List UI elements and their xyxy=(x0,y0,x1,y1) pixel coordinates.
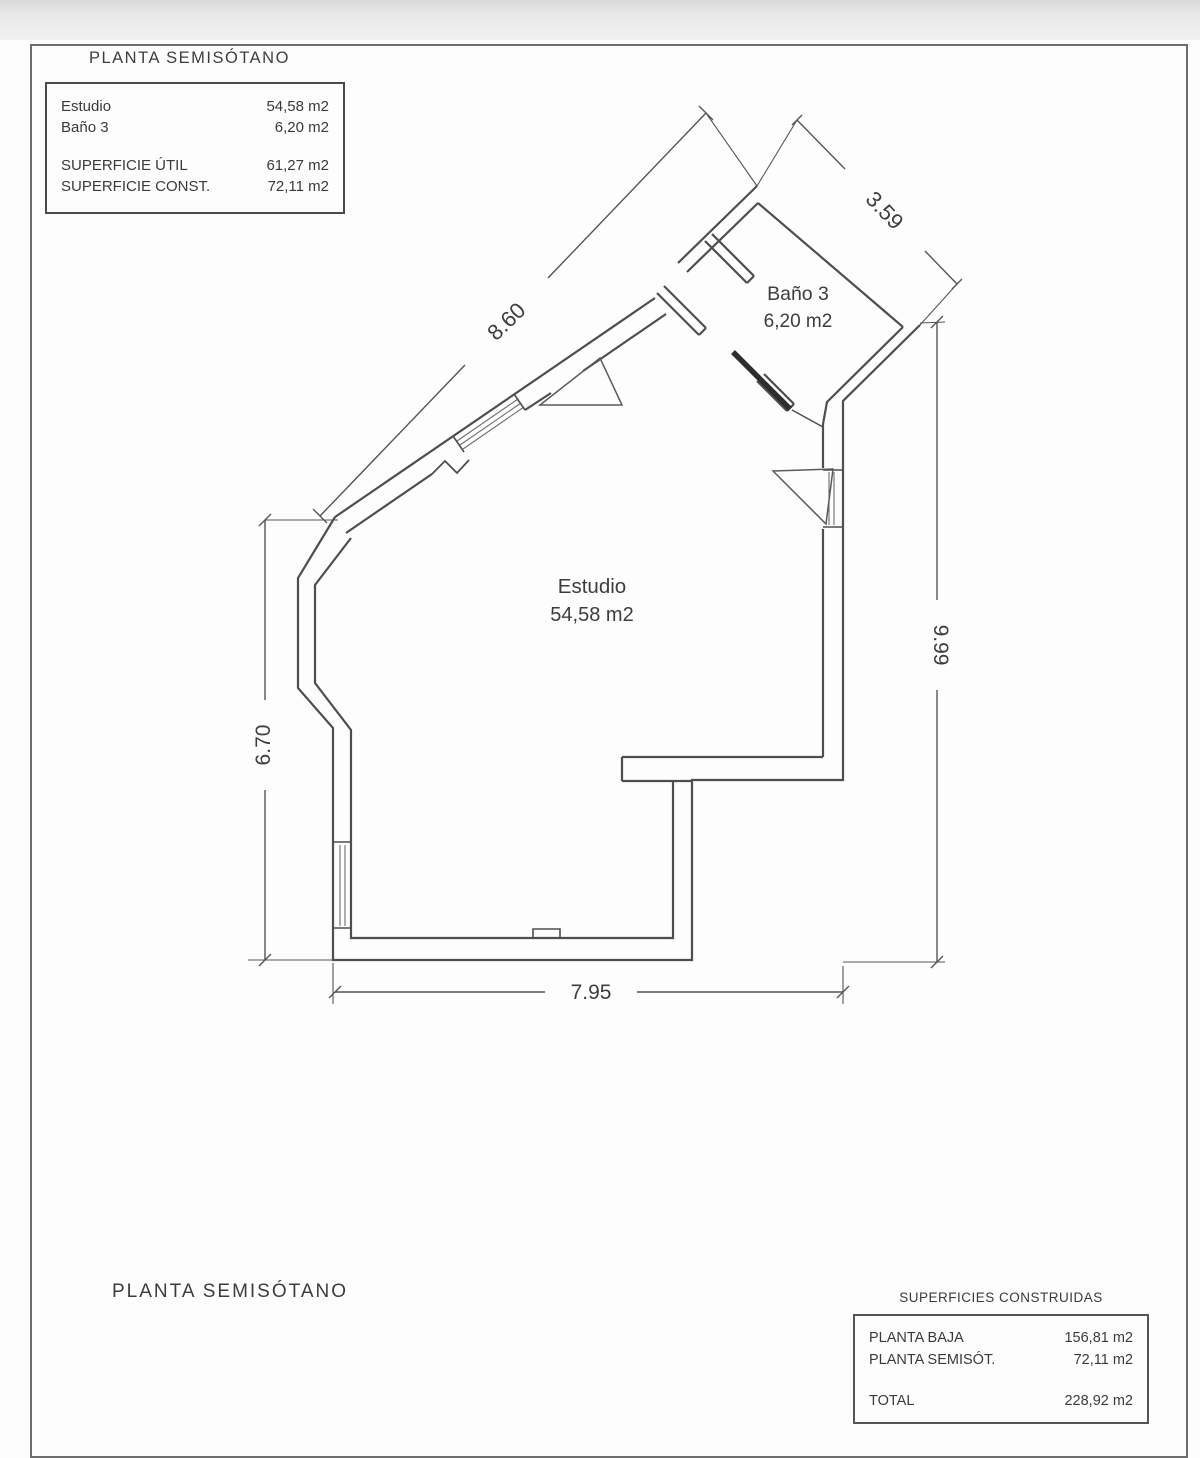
summary-value: 156,81 m2 xyxy=(1064,1327,1133,1349)
bottom-wall-bump xyxy=(533,929,560,938)
room-area-bano: 6,20 m2 xyxy=(764,311,833,332)
bathroom-door-leaf xyxy=(733,352,790,409)
room-labels: Estudio 54,58 m2 Baño 3 6,20 m2 xyxy=(550,283,832,626)
wall-outer-main xyxy=(298,325,920,960)
summary-row-planta-baja: PLANTA BAJA 156,81 m2 xyxy=(869,1327,1133,1349)
summary-value: 72,11 m2 xyxy=(1074,1349,1133,1371)
summary-value: 228,92 m2 xyxy=(1064,1390,1133,1412)
window-nw-wall xyxy=(453,394,525,452)
bathroom-entry-chamfer xyxy=(792,410,823,427)
summary-row-planta-semisot: PLANTA SEMISÓT. 72,11 m2 xyxy=(869,1349,1133,1371)
summary-row-total: TOTAL 228,92 m2 xyxy=(869,1390,1133,1412)
summary-label: TOTAL xyxy=(869,1390,914,1412)
bathroom-wall-se-inner xyxy=(823,327,903,424)
dim-label-9-99: 9.99 xyxy=(929,625,952,666)
dimension-lines xyxy=(248,106,962,1004)
summary-label: PLANTA SEMISÓT. xyxy=(869,1349,995,1371)
dim-label-3-59: 3.59 xyxy=(861,186,909,234)
doors xyxy=(540,352,833,524)
summary-label: PLANTA BAJA xyxy=(869,1327,964,1349)
wall-nw-jog xyxy=(432,460,469,474)
room-name-estudio: Estudio xyxy=(558,575,626,598)
bathroom-partition-stub-1 xyxy=(705,234,754,283)
dim-label-8-60: 8.60 xyxy=(482,297,530,345)
dimension-extension-lines xyxy=(248,113,957,1004)
door-swing-triangle-right xyxy=(773,469,833,524)
dim-label-7-95: 7.95 xyxy=(571,981,612,1004)
wall-inner-left-bottom xyxy=(315,538,673,938)
summary-table-title: SUPERFICIES CONSTRUIDAS xyxy=(853,1290,1149,1305)
bathroom-partition-stub-2 xyxy=(657,286,706,335)
door-swing-triangle-nw xyxy=(540,358,622,405)
wall-step-t xyxy=(622,757,823,781)
room-area-estudio: 54,58 m2 xyxy=(550,604,633,626)
dim-label-6-70: 6.70 xyxy=(252,725,275,766)
window-left-wall xyxy=(333,842,351,928)
floor-plan-drawing: 8.60 3.59 9.99 6.70 7.95 Estudio 54,58 m… xyxy=(0,0,1200,1444)
wall-nw-inner xyxy=(346,314,666,533)
bathroom-wall-nw xyxy=(678,186,758,272)
summary-table: PLANTA BAJA 156,81 m2 PLANTA SEMISÓT. 72… xyxy=(853,1314,1149,1424)
footer-plan-label: PLANTA SEMISÓTANO xyxy=(112,1281,348,1303)
windows xyxy=(333,394,843,928)
room-name-bano: Baño 3 xyxy=(767,283,829,305)
